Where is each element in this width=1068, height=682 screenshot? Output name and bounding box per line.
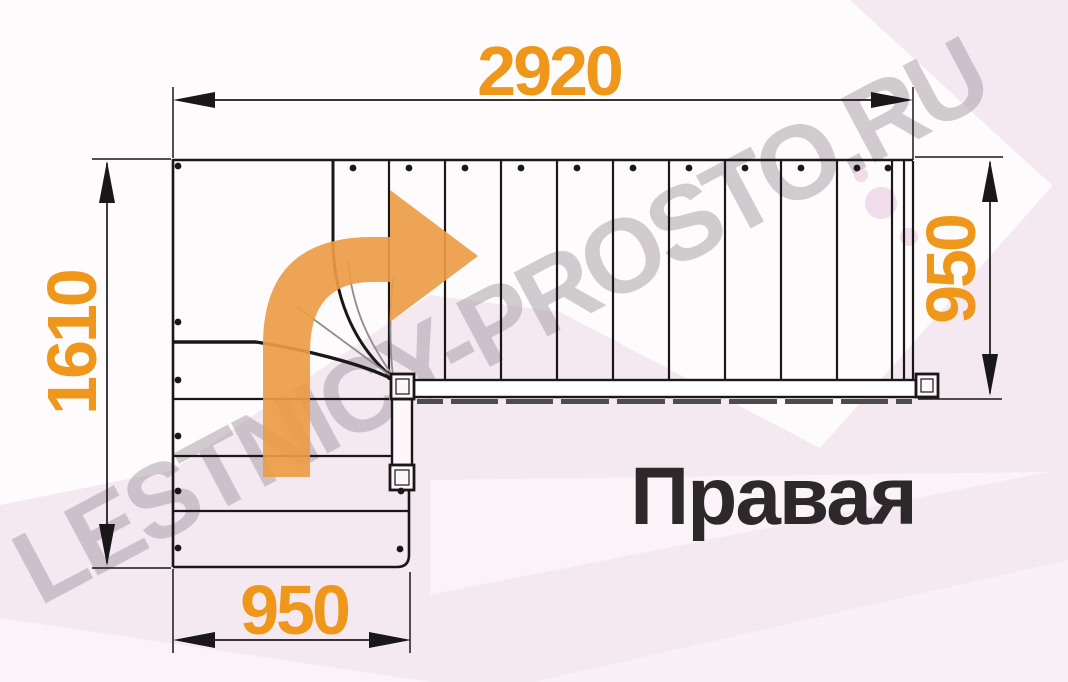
plan-title: Правая: [630, 456, 915, 538]
dimension-label-lower-flight-width: 950: [240, 575, 348, 645]
dimension-arrowheads: [99, 92, 998, 648]
staircase-plan-page: LESTNICY-PROSTO.RU 2920 1610 950 950 Пра…: [0, 0, 1068, 682]
dimension-label-total-depth: 1610: [37, 271, 107, 415]
dimension-label-upper-flight-width: 950: [916, 216, 986, 324]
dimension-label-total-run: 2920: [477, 36, 621, 106]
